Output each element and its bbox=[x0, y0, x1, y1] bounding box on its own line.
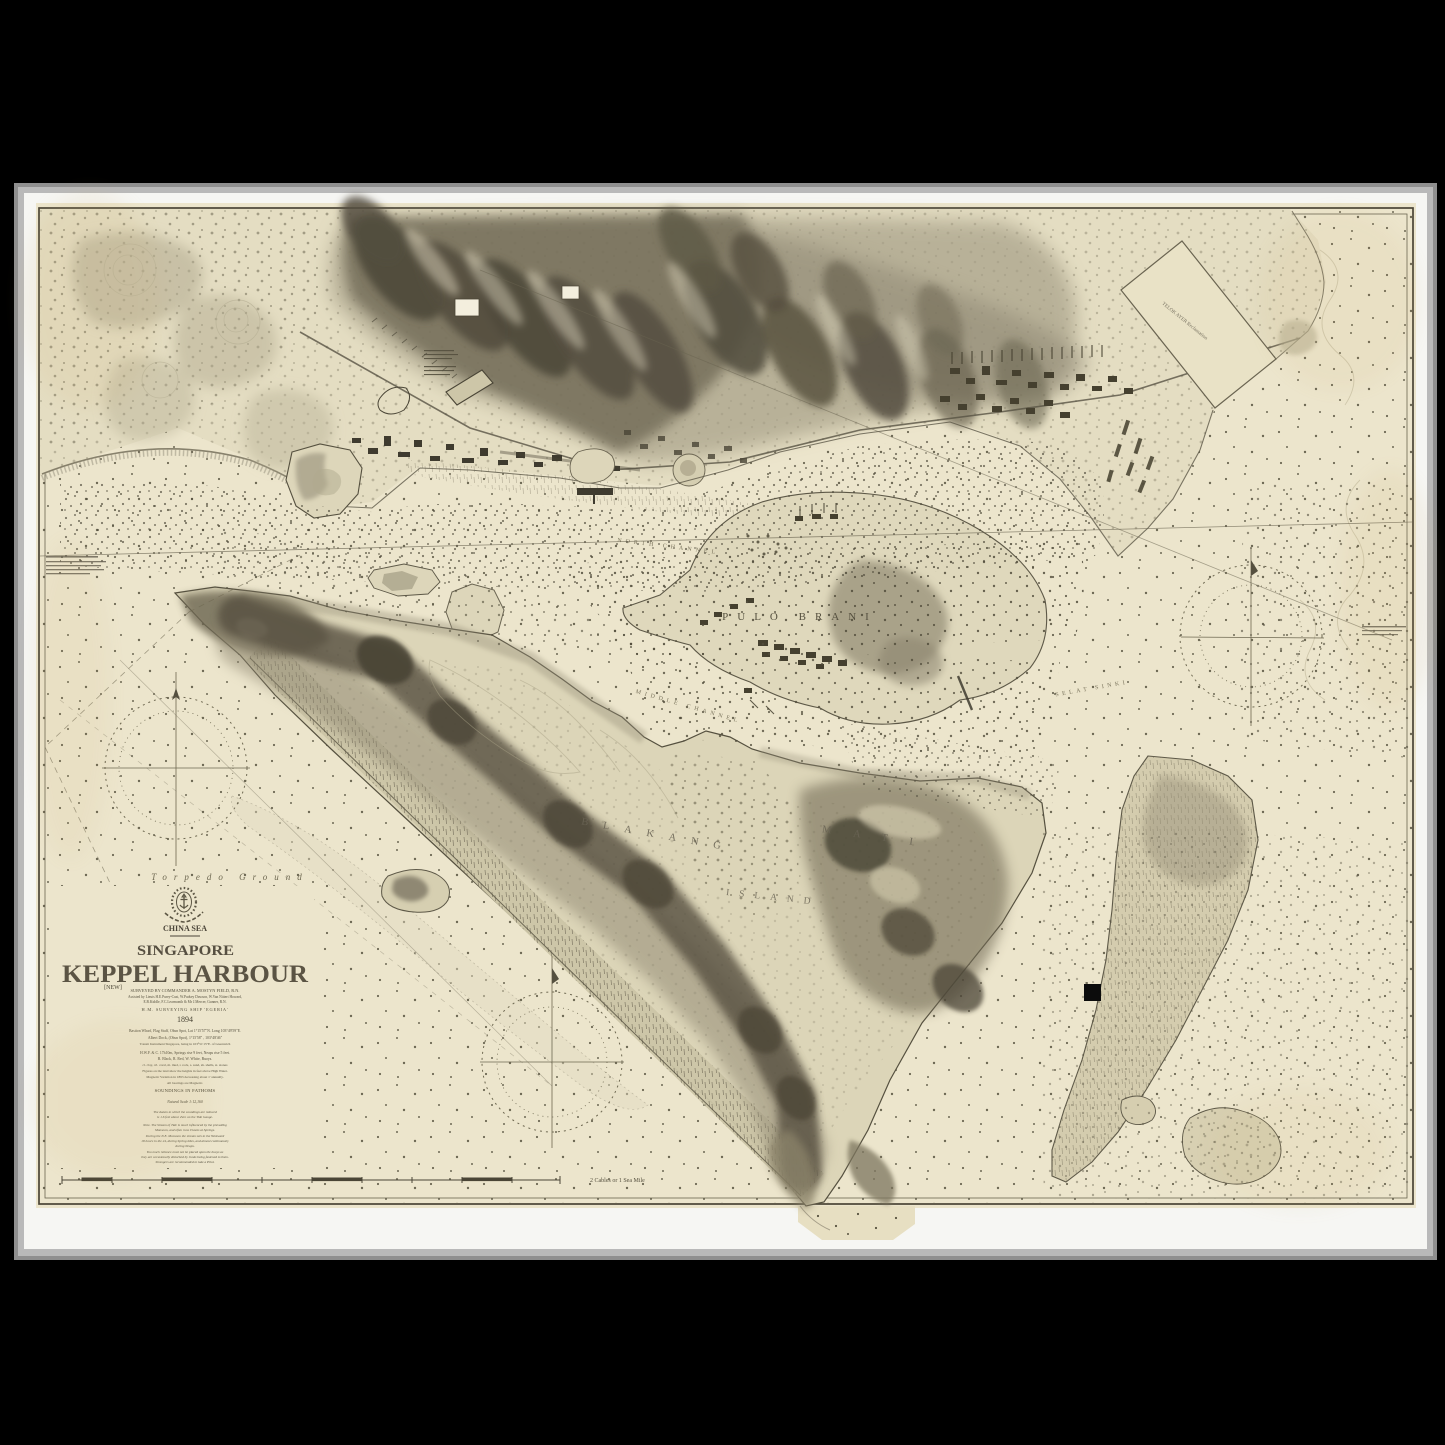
svg-text:SINGAPORE: SINGAPORE bbox=[137, 943, 234, 959]
svg-text:CHINA SEA: CHINA SEA bbox=[163, 923, 208, 933]
svg-text:Torpedo Ground: Torpedo Ground bbox=[151, 872, 309, 882]
svg-text:2 Cables or 1 Sea Mile: 2 Cables or 1 Sea Mile bbox=[590, 1178, 645, 1184]
svg-text:KEPPEL HARBOUR: KEPPEL HARBOUR bbox=[62, 961, 309, 988]
svg-text:[NEW]: [NEW] bbox=[104, 985, 122, 991]
svg-text:PULO BRANI: PULO BRANI bbox=[722, 611, 878, 623]
svg-text:H.M. SURVEYING SHIP 'EGERIA': H.M. SURVEYING SHIP 'EGERIA' bbox=[141, 1007, 228, 1012]
svg-text:1894: 1894 bbox=[177, 1015, 193, 1024]
